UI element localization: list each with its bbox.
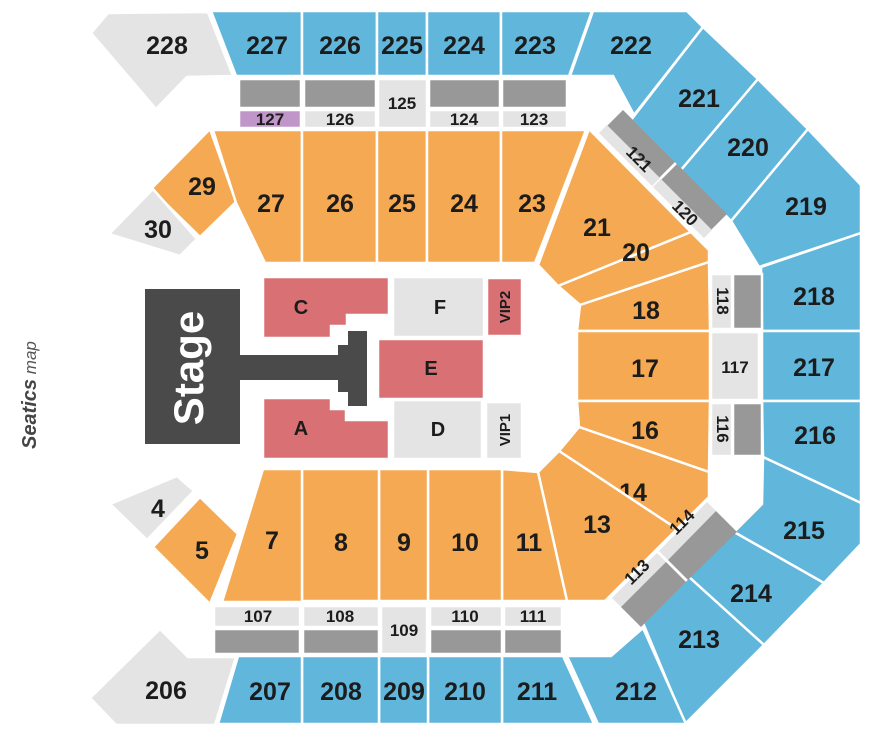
svg-text:226: 226 xyxy=(319,32,361,60)
svg-text:26: 26 xyxy=(326,190,354,218)
svg-text:24: 24 xyxy=(450,190,478,218)
svg-text:213: 213 xyxy=(678,626,720,654)
svg-text:123: 123 xyxy=(520,110,548,129)
svg-text:8: 8 xyxy=(334,529,348,557)
svg-text:Seatics map: Seatics map xyxy=(19,341,41,449)
svg-text:4: 4 xyxy=(151,495,165,523)
svg-text:23: 23 xyxy=(518,190,546,218)
svg-text:227: 227 xyxy=(246,32,288,60)
svg-text:210: 210 xyxy=(444,678,486,706)
svg-text:225: 225 xyxy=(381,32,423,60)
svg-text:9: 9 xyxy=(397,529,411,557)
svg-text:117: 117 xyxy=(721,358,748,377)
svg-text:224: 224 xyxy=(443,32,485,60)
svg-text:E: E xyxy=(424,358,437,380)
svg-text:221: 221 xyxy=(678,85,720,113)
svg-text:13: 13 xyxy=(583,511,611,539)
svg-text:29: 29 xyxy=(188,173,216,201)
svg-text:108: 108 xyxy=(326,607,354,626)
svg-text:211: 211 xyxy=(517,678,557,706)
svg-text:125: 125 xyxy=(388,94,416,113)
svg-text:30: 30 xyxy=(144,216,172,244)
svg-text:111: 111 xyxy=(520,607,547,626)
svg-text:109: 109 xyxy=(390,621,418,640)
svg-text:25: 25 xyxy=(388,190,416,218)
svg-text:219: 219 xyxy=(785,193,827,221)
svg-text:212: 212 xyxy=(615,678,657,706)
svg-text:116: 116 xyxy=(713,415,732,442)
svg-text:27: 27 xyxy=(257,190,285,218)
svg-text:124: 124 xyxy=(450,110,479,129)
svg-text:220: 220 xyxy=(727,134,769,162)
svg-text:208: 208 xyxy=(320,678,362,706)
svg-text:215: 215 xyxy=(783,517,825,545)
svg-text:110: 110 xyxy=(451,607,478,626)
svg-text:11: 11 xyxy=(516,529,543,557)
svg-text:126: 126 xyxy=(326,110,354,129)
svg-text:20: 20 xyxy=(622,239,650,267)
svg-text:F: F xyxy=(434,297,446,319)
svg-text:107: 107 xyxy=(244,607,272,626)
svg-text:207: 207 xyxy=(249,678,291,706)
svg-text:D: D xyxy=(431,419,445,441)
svg-text:118: 118 xyxy=(713,287,732,314)
svg-text:18: 18 xyxy=(632,297,660,325)
svg-text:16: 16 xyxy=(631,417,659,445)
svg-text:C: C xyxy=(294,297,308,319)
svg-text:222: 222 xyxy=(610,32,652,60)
svg-text:218: 218 xyxy=(793,283,835,311)
svg-text:127: 127 xyxy=(256,110,284,129)
svg-text:21: 21 xyxy=(583,214,611,242)
svg-text:216: 216 xyxy=(794,422,836,450)
svg-text:Stage: Stage xyxy=(165,311,212,425)
svg-text:223: 223 xyxy=(514,32,556,60)
svg-text:17: 17 xyxy=(631,355,659,383)
svg-text:A: A xyxy=(294,418,308,440)
svg-text:7: 7 xyxy=(265,527,279,555)
svg-text:209: 209 xyxy=(383,678,425,706)
svg-text:228: 228 xyxy=(146,32,188,60)
svg-text:214: 214 xyxy=(730,580,772,608)
svg-text:VIP1: VIP1 xyxy=(497,414,514,447)
svg-text:206: 206 xyxy=(145,677,187,705)
svg-text:5: 5 xyxy=(195,537,209,565)
svg-text:10: 10 xyxy=(451,529,479,557)
svg-text:217: 217 xyxy=(793,354,835,382)
svg-text:VIP2: VIP2 xyxy=(497,291,514,324)
